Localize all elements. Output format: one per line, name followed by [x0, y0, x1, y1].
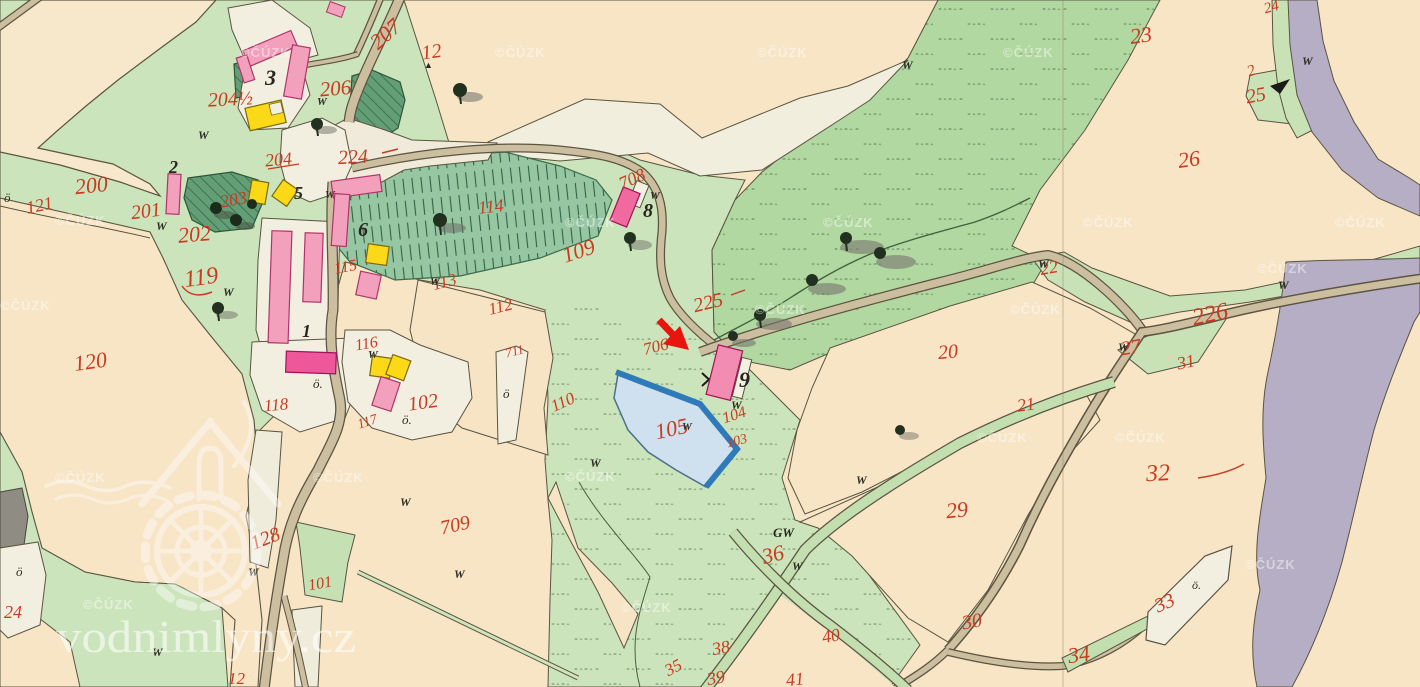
svg-text:202: 202 [177, 220, 212, 248]
svg-text:8: 8 [643, 200, 653, 222]
svg-text:38: 38 [709, 636, 731, 659]
svg-text:©ČÚZK: ©ČÚZK [1010, 302, 1061, 317]
svg-text:W: W [856, 473, 868, 487]
svg-text:W: W [650, 190, 661, 202]
svg-text:224: 224 [337, 146, 368, 170]
svg-text:ö: ö [16, 564, 23, 579]
svg-text:©ČÚZK: ©ČÚZK [823, 215, 874, 230]
svg-text:©ČÚZK: ©ČÚZK [977, 430, 1028, 445]
svg-text:W: W [198, 128, 210, 142]
svg-text:5: 5 [294, 183, 303, 203]
svg-text:W: W [1278, 278, 1290, 292]
svg-text:9: 9 [739, 367, 750, 392]
svg-text:W: W [731, 398, 743, 412]
svg-text:▲: ▲ [424, 60, 433, 70]
svg-text:29: 29 [945, 496, 969, 523]
svg-text:30: 30 [959, 609, 984, 634]
svg-text:©ČÚZK: ©ČÚZK [565, 469, 616, 484]
svg-text:©ČÚZK: ©ČÚZK [755, 302, 806, 317]
svg-text:40: 40 [820, 624, 841, 647]
svg-text:118: 118 [263, 394, 289, 415]
svg-text:©ČÚZK: ©ČÚZK [495, 45, 546, 60]
svg-text:©ČÚZK: ©ČÚZK [313, 470, 364, 485]
svg-text:204½: 204½ [207, 87, 253, 111]
svg-text:W: W [1302, 54, 1314, 68]
svg-text:W: W [368, 349, 379, 361]
svg-text:W: W [902, 58, 914, 72]
svg-text:ö.: ö. [1192, 578, 1201, 592]
svg-text:©ČÚZK: ©ČÚZK [240, 45, 291, 60]
svg-text:2: 2 [168, 157, 178, 177]
svg-text:vodnimlyny.cz: vodnimlyny.cz [56, 611, 356, 662]
svg-text:ö.: ö. [402, 412, 412, 427]
svg-text:©ČÚZK: ©ČÚZK [621, 600, 672, 615]
svg-text:24: 24 [4, 602, 22, 622]
svg-text:119: 119 [182, 263, 220, 294]
svg-text:20: 20 [937, 340, 959, 364]
svg-text:34: 34 [1065, 640, 1091, 668]
svg-text:23: 23 [1128, 21, 1153, 49]
svg-text:©ČÚZK: ©ČÚZK [0, 298, 51, 313]
svg-text:ö.: ö. [313, 376, 323, 391]
svg-text:©ČÚZK: ©ČÚZK [83, 597, 134, 612]
svg-text:25: 25 [1244, 83, 1268, 108]
svg-text:©ČÚZK: ©ČÚZK [1257, 261, 1308, 276]
svg-text:32: 32 [1144, 460, 1170, 487]
svg-text:W: W [430, 276, 441, 288]
svg-text:W: W [1038, 257, 1050, 271]
svg-text:W: W [325, 189, 336, 201]
svg-text:©ČÚZK: ©ČÚZK [1245, 557, 1296, 572]
svg-text:6: 6 [358, 219, 368, 241]
svg-text:©ČÚZK: ©ČÚZK [565, 215, 616, 230]
svg-text:200: 200 [74, 171, 109, 199]
svg-text:39: 39 [704, 666, 726, 687]
svg-text:1: 1 [302, 321, 311, 341]
svg-text:21: 21 [1016, 393, 1037, 415]
svg-text:W: W [400, 495, 412, 509]
svg-text:3: 3 [264, 65, 276, 90]
svg-text:26: 26 [1176, 145, 1201, 173]
svg-text:ö: ö [4, 190, 11, 205]
svg-text:W: W [317, 96, 328, 108]
svg-text:ö: ö [503, 386, 510, 401]
svg-text:W: W [1118, 340, 1130, 354]
svg-text:©ČÚZK: ©ČÚZK [55, 213, 106, 228]
svg-text:W: W [223, 285, 235, 299]
svg-text:W: W [454, 567, 466, 581]
svg-text:©ČÚZK: ©ČÚZK [1003, 45, 1054, 60]
svg-text:©ČÚZK: ©ČÚZK [1335, 215, 1386, 230]
svg-text:©ČÚZK: ©ČÚZK [1083, 215, 1134, 230]
svg-text:©ČÚZK: ©ČÚZK [757, 45, 808, 60]
svg-text:W: W [682, 421, 693, 433]
svg-text:12: 12 [228, 669, 246, 687]
svg-text:114: 114 [477, 195, 505, 218]
svg-text:©ČÚZK: ©ČÚZK [1115, 430, 1166, 445]
svg-text:120: 120 [72, 347, 108, 376]
svg-text:41: 41 [785, 668, 805, 687]
svg-text:GW: GW [773, 525, 795, 540]
svg-text:W: W [156, 219, 168, 233]
svg-text:W: W [792, 559, 804, 573]
svg-text:W: W [590, 456, 602, 470]
